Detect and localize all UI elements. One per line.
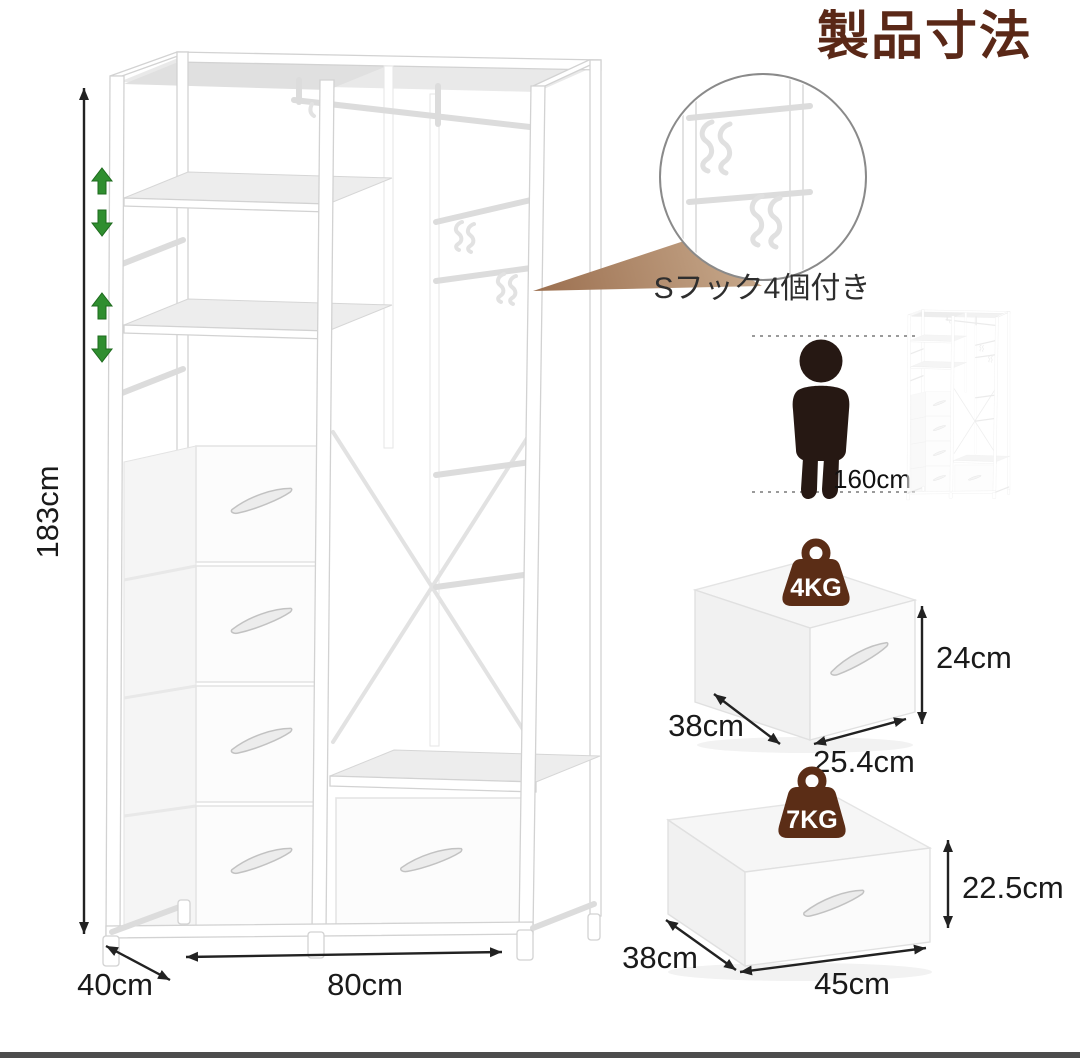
footer-bar: [0, 1052, 1080, 1058]
small-drawer-width-label: 25.4cm: [813, 744, 915, 779]
height-comparison: 160cm: [752, 310, 1010, 500]
max-load-label: 4KG: [790, 574, 841, 602]
large-drawer-depth-label: 38cm: [622, 940, 698, 975]
person-height-label: 160cm: [833, 464, 911, 494]
large-drawer-width-label: 45cm: [814, 966, 890, 1001]
weight-badge-4kg: 4KG: [782, 543, 849, 607]
product-dimension-diagram: 183cm 40cm 80cm Sフック4個付き: [0, 0, 1080, 1060]
wardrobe-illustration: [103, 52, 601, 966]
max-load-label: 7KG: [786, 806, 837, 834]
small-drawer-illustration: 4KG 24cm 25.4cm 38cm: [668, 543, 1012, 780]
small-drawer-depth-label: 38cm: [668, 708, 744, 743]
wardrobe-thumbnail: [906, 310, 1010, 500]
page-title: 製品寸法: [795, 0, 1055, 69]
width-dimension-label: 80cm: [327, 967, 403, 1002]
s-hook-callout: Sフック4個付き: [533, 70, 870, 305]
weight-badge-7kg: 7KG: [778, 771, 845, 839]
small-drawer-height-label: 24cm: [936, 640, 1012, 675]
large-drawer-illustration: 7KG 22.5cm 45cm 38cm: [622, 771, 1064, 1002]
s-hook-callout-label: Sフック4個付き: [654, 272, 871, 305]
large-drawer-height-label: 22.5cm: [962, 870, 1064, 905]
height-dimension-label: 183cm: [30, 465, 65, 558]
depth-dimension-label: 40cm: [77, 967, 153, 1002]
diagram-canvas: 183cm 40cm 80cm Sフック4個付き: [0, 0, 1080, 1060]
